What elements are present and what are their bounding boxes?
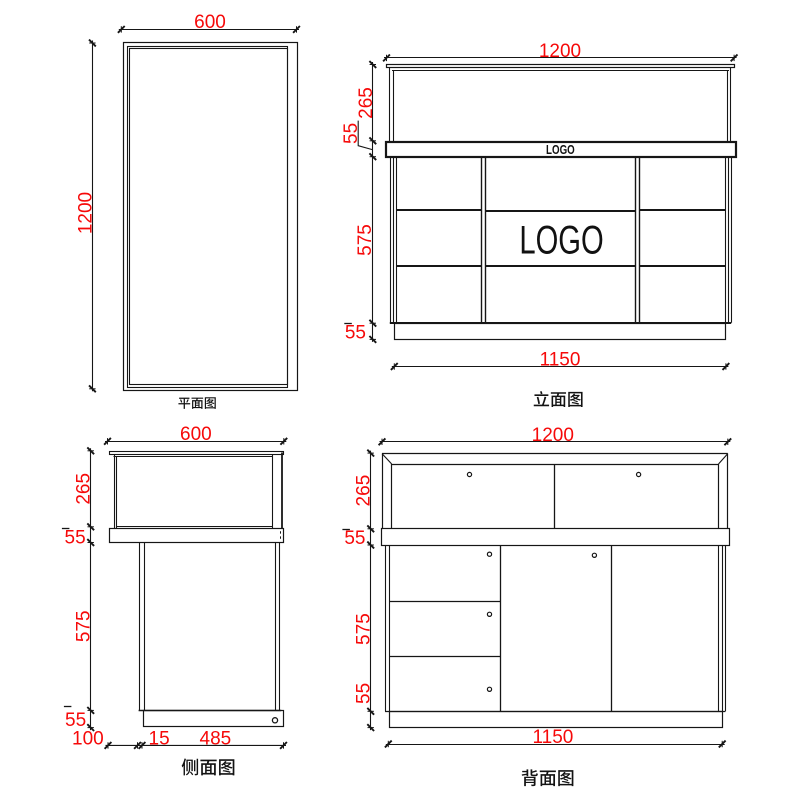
svg-text:55: 55 bbox=[65, 527, 86, 548]
svg-text:LOGO: LOGO bbox=[546, 144, 575, 158]
svg-text:55: 55 bbox=[344, 528, 365, 549]
svg-text:600: 600 bbox=[180, 424, 212, 445]
svg-text:265: 265 bbox=[356, 87, 377, 119]
svg-text:15: 15 bbox=[149, 729, 170, 750]
svg-text:575: 575 bbox=[74, 610, 95, 642]
svg-text:55: 55 bbox=[354, 683, 375, 704]
svg-text:265: 265 bbox=[74, 473, 95, 505]
svg-text:LOGO: LOGO bbox=[519, 218, 603, 263]
svg-text:575: 575 bbox=[355, 224, 376, 256]
svg-text:575: 575 bbox=[354, 613, 375, 645]
svg-text:1200: 1200 bbox=[75, 192, 96, 234]
svg-text:1150: 1150 bbox=[540, 349, 581, 370]
svg-text:1200: 1200 bbox=[539, 41, 581, 62]
svg-text:600: 600 bbox=[194, 12, 226, 33]
svg-text:265: 265 bbox=[354, 475, 375, 507]
svg-text:100: 100 bbox=[72, 729, 104, 750]
svg-text:1150: 1150 bbox=[532, 727, 573, 748]
svg-text:485: 485 bbox=[200, 729, 232, 750]
svg-text:55: 55 bbox=[345, 323, 366, 344]
svg-text:1200: 1200 bbox=[532, 425, 574, 446]
